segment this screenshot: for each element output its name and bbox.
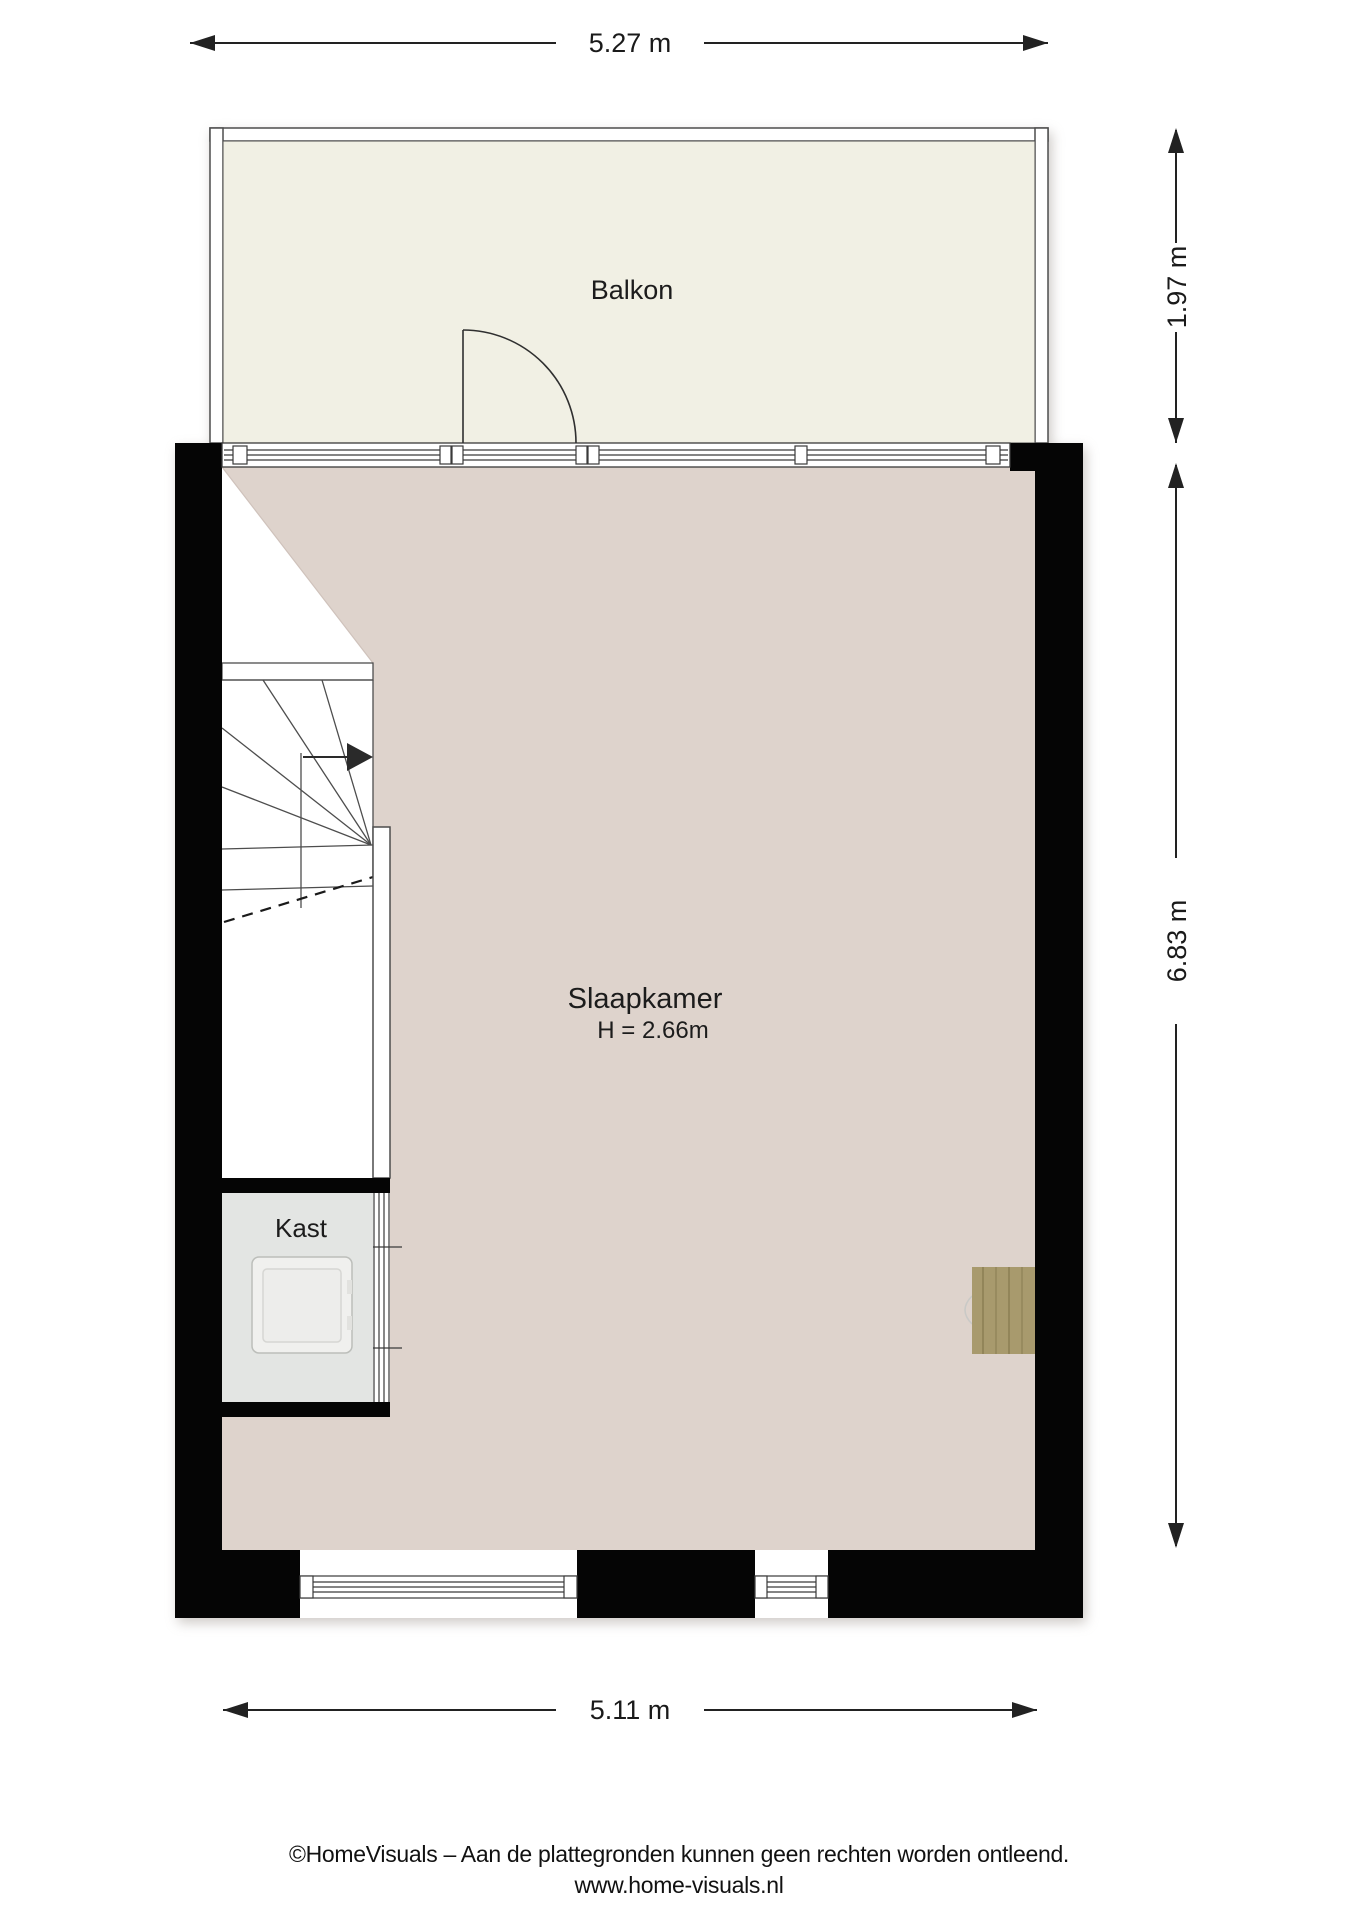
- desk: [965, 1267, 1035, 1354]
- dimension-right-lower: 6.83 m: [1162, 463, 1192, 1548]
- bottom-window-large: [300, 1550, 577, 1618]
- arrow-up-icon: [1168, 463, 1184, 488]
- arrow-right-icon: [1012, 1702, 1037, 1718]
- arrow-down-icon: [1168, 1523, 1184, 1548]
- footer-disclaimer: ©HomeVisuals – Aan de plattegronden kunn…: [289, 1841, 1069, 1867]
- washing-machine-icon: [252, 1257, 352, 1353]
- arrow-up-icon: [1168, 128, 1184, 153]
- stairwell-partition-wall: [373, 827, 390, 1178]
- arrow-left-icon: [223, 1702, 248, 1718]
- bedroom-label: Slaapkamer: [568, 983, 723, 1015]
- dimension-bottom: 5.11 m: [223, 1695, 1037, 1725]
- dimension-right-upper: 1.97 m: [1162, 128, 1192, 443]
- footer: ©HomeVisuals – Aan de plattegronden kunn…: [289, 1841, 1069, 1898]
- dimension-top-label: 5.27 m: [589, 28, 672, 58]
- bedroom-height-note: H = 2.66m: [597, 1017, 708, 1044]
- balcony-label: Balkon: [591, 275, 674, 305]
- arrow-down-icon: [1168, 418, 1184, 443]
- arrow-right-icon: [1023, 35, 1048, 51]
- dimension-top: 5.27 m: [190, 28, 1048, 58]
- balcony-window-band: [222, 443, 1010, 467]
- floorplan-drawing: 5.27 m: [0, 0, 1358, 1920]
- floorplan-page: 5.27 m: [0, 0, 1358, 1920]
- dimension-right-upper-label: 1.97 m: [1162, 246, 1192, 329]
- footer-website: www.home-visuals.nl: [573, 1872, 783, 1898]
- dimension-right-lower-label: 6.83 m: [1162, 900, 1192, 983]
- bottom-window-small: [755, 1550, 828, 1618]
- plan-body: Balkon Slaapkamer H = 2.66m Kast: [175, 128, 1083, 1618]
- arrow-left-icon: [190, 35, 215, 51]
- closet-label: Kast: [275, 1213, 328, 1243]
- dimension-bottom-label: 5.11 m: [590, 1695, 671, 1725]
